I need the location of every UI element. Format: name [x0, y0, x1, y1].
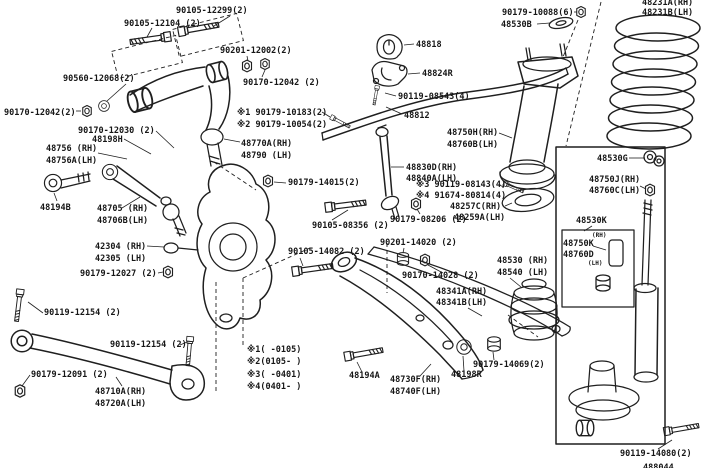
label-48706B: 48706B(LH) — [97, 216, 148, 226]
applicability-legend: ※1( -0105) ※2(0105- ) ※3( -0401) ※4(0401… — [247, 344, 301, 392]
label-48231A: 48231A(RH) — [642, 0, 693, 8]
label-48257C: 48257C(RH) — [450, 202, 501, 212]
label-48760D: 48760D — [563, 250, 594, 260]
label-48710A: 48710A(RH) — [95, 387, 146, 397]
bump-stop-48530 — [509, 279, 559, 340]
bolt-90105-12104 — [130, 32, 172, 47]
nut-90179-12091 — [15, 385, 25, 397]
label-48194A: 48194A — [349, 371, 380, 381]
label-48750K: 48750K — [563, 239, 595, 249]
label-90201-14020: 90201-14020 (2) — [380, 238, 457, 248]
label-ref1-90179-10183: ※1 90179-10183(2) — [237, 107, 327, 118]
label-figure-code-clipped: 488044 — [643, 463, 674, 468]
label-90201-12002: 90201-12002(2) — [220, 46, 292, 56]
label-90105-08356: 90105-08356 (2) — [312, 221, 389, 231]
shock-absorber-48530K — [569, 200, 658, 436]
legend-line-4: ※4(0401- ) — [247, 381, 301, 392]
label-90170-12042-left: 90170-12042(2) — [4, 108, 76, 118]
label-48341A: 48341A(RH) — [436, 287, 487, 297]
legend-line-2: ※2(0105- ) — [247, 356, 301, 367]
suspension-exploded-drawing: 90105-12299(2) 90105-12104 (2) 90201-120… — [0, 0, 702, 468]
label-48705: 48705 (RH) — [97, 204, 148, 214]
coil-spring-48231A — [607, 15, 700, 149]
washer-48198R — [457, 340, 471, 354]
label-90179-14015: 90179-14015(2) — [288, 178, 360, 188]
label-90179-10088: 90179-10088(6) — [502, 8, 574, 18]
label-90119-12154-b: 90119-12154 (2) — [110, 340, 187, 350]
stabilizer-bushing-48818 — [377, 35, 402, 59]
label-48790: 48790 (LH) — [241, 151, 292, 161]
label-48750H: 48750H(RH) — [447, 128, 498, 138]
nut-90179-12027 — [164, 266, 173, 278]
label-90105-14082: 90105-14082 (2) — [288, 247, 365, 257]
nut-48750J — [646, 184, 655, 196]
label-48530K: 48530K — [576, 216, 608, 226]
shock-absorber-upper — [500, 44, 578, 189]
label-48750J: 48750J(RH) — [589, 175, 640, 185]
label-48770A: 48770A(RH) — [241, 139, 292, 149]
nut-90179-10088 — [577, 6, 586, 17]
label-48750K-rh: (RH) — [592, 232, 606, 239]
label-48194B: 48194B — [40, 203, 71, 213]
label-ref2-90179-10054: ※2 90179-10054(2) — [237, 119, 327, 130]
label-48198R: 48198R — [451, 370, 483, 380]
label-48730F: 48730F(RH) — [390, 375, 441, 385]
bolt-48194A — [344, 346, 384, 362]
stabilizer-link-48830D — [376, 125, 401, 219]
label-48812: 48812 — [404, 111, 430, 121]
upper-control-arm — [126, 61, 230, 166]
knuckle — [164, 164, 275, 329]
label-90179-12091: 90179-12091 (2) — [31, 370, 108, 380]
nut-90201-12002 — [243, 60, 252, 72]
label-48530: 48530 (RH) — [497, 256, 548, 266]
retainer-90170-14028 — [421, 254, 430, 266]
label-90105-12104: 90105-12104 (2) — [124, 19, 201, 29]
label-48760C: 48760C(LH) — [589, 186, 640, 196]
bolt-90105-14082 — [292, 261, 334, 276]
label-90119-12154-a: 90119-12154 (2) — [44, 308, 121, 318]
label-42305: 42305 (LH) — [95, 254, 146, 264]
label-90179-12027: 90179-12027 (2) — [80, 269, 157, 279]
label-48830D: 48830D(RH) — [406, 163, 457, 173]
washer-90560-12068 — [99, 101, 110, 112]
label-48341B: 48341B(LH) — [436, 298, 487, 308]
label-90119-08543: 90119-08543(4) — [398, 92, 470, 102]
label-48824R: 48824R — [422, 69, 454, 79]
label-48756A: 48756A(LH) — [46, 156, 97, 166]
label-48540: 48540 (LH) — [497, 268, 548, 278]
label-48259A: 48259A(LH) — [454, 213, 505, 223]
label-48760D-lh: (LH) — [588, 260, 602, 267]
label-48818: 48818 — [416, 40, 442, 50]
washer-90170-12042-right — [261, 58, 270, 69]
label-90170-12042-right: 90170-12042 (2) — [243, 78, 320, 88]
label-90170-14028: 90170-14028 (2) — [402, 271, 479, 281]
label-90119-14080: 90119-14080(2) — [620, 449, 692, 459]
label-48231B: 48231B(LH) — [642, 8, 693, 18]
bolt-90119-14080 — [663, 422, 699, 436]
label-48530B: 48530B — [501, 20, 532, 30]
label-48530G: 48530G — [597, 154, 628, 164]
grommets-48530G — [644, 151, 664, 166]
grommet-90179-14069 — [488, 337, 501, 351]
label-48756: 48756 (RH) — [46, 144, 97, 154]
bolt-90119-08543 — [372, 85, 380, 105]
label-48760B: 48760B(LH) — [447, 140, 498, 150]
legend-line-3: ※3( -0401) — [247, 369, 301, 380]
stabilizer-bracket-48824R — [372, 61, 407, 86]
label-48740F: 48740F(LH) — [390, 387, 441, 397]
label-90179-14069: 90179-14069(2) — [473, 360, 545, 370]
rod-end-48194B — [44, 172, 90, 192]
nut-90170-12042-left — [83, 105, 92, 116]
parts-diagram-canvas: 90105-12299(2) 90105-12104 (2) 90201-120… — [0, 0, 702, 468]
label-48720A: 48720A(LH) — [95, 399, 146, 409]
bolt-90119-12154-a — [13, 289, 24, 322]
legend-line-1: ※1( -0105) — [247, 344, 301, 355]
label-ref4-91674-80814: ※4 91674-80814(4) — [416, 190, 506, 201]
label-42304: 42304 (RH) — [95, 242, 146, 252]
spring-seat-48257C — [501, 185, 556, 214]
bolt-90105-08356 — [325, 198, 367, 212]
nut-90179-14015 — [264, 175, 273, 187]
label-ref3-90119-08143: ※3 90119-08143(4) — [416, 179, 506, 190]
label-90105-12299: 90105-12299(2) — [176, 6, 248, 16]
label-90560-12068: 90560-12068(2) — [63, 74, 135, 84]
part-labels: 90105-12299(2) 90105-12104 (2) 90201-120… — [4, 0, 693, 468]
